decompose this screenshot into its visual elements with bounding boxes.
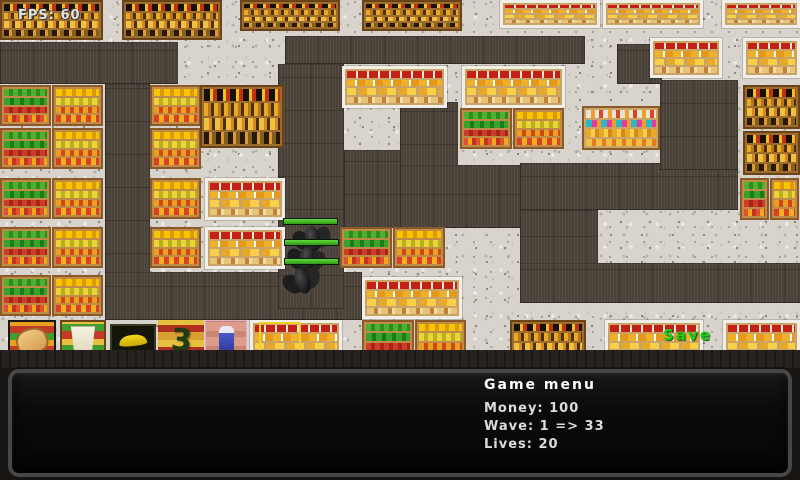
shelf-row bbox=[204, 132, 280, 144]
shelf-row bbox=[56, 89, 99, 96]
shelf-row bbox=[154, 132, 197, 139]
shelf-row bbox=[586, 120, 656, 128]
shelf-row bbox=[4, 240, 47, 247]
shelf-row bbox=[467, 71, 560, 78]
shelf-produceGR[interactable] bbox=[0, 227, 51, 268]
fps-counter: FPS: 60 bbox=[18, 8, 81, 23]
shelf-row bbox=[344, 249, 388, 256]
shelf-row bbox=[744, 191, 765, 198]
shelf-row bbox=[4, 200, 47, 207]
shelf-row bbox=[4, 191, 47, 198]
shelf-produceGR[interactable] bbox=[340, 227, 392, 268]
shelf-row bbox=[367, 291, 457, 298]
shelf-row bbox=[747, 135, 796, 143]
shelf-row bbox=[747, 164, 796, 172]
shelf-bottles[interactable] bbox=[200, 85, 284, 148]
shelf-bottles[interactable] bbox=[743, 131, 800, 175]
shelf-produceGR[interactable] bbox=[0, 85, 51, 126]
shelf-row bbox=[727, 20, 795, 23]
shelf-row bbox=[774, 200, 795, 207]
shelf-row bbox=[56, 158, 99, 165]
shelf-row bbox=[56, 257, 99, 264]
shelf-row bbox=[126, 13, 218, 20]
shelf-produceY[interactable] bbox=[150, 227, 201, 268]
shelf-row bbox=[747, 145, 796, 153]
shelf-cereal[interactable] bbox=[582, 106, 660, 150]
enemy-healthbar bbox=[283, 218, 338, 225]
shelf-row bbox=[608, 15, 698, 18]
shelf-row bbox=[154, 98, 197, 105]
shelf-row bbox=[748, 59, 795, 65]
shelf-row bbox=[56, 249, 99, 256]
shelf-row bbox=[154, 182, 197, 189]
shelf-row bbox=[204, 89, 280, 101]
shelf-row bbox=[4, 141, 47, 148]
shelf-row bbox=[467, 80, 560, 87]
shelf-row bbox=[366, 4, 458, 8]
shelf-row bbox=[4, 297, 47, 304]
shelf-row bbox=[514, 333, 582, 340]
shelf-row bbox=[4, 30, 99, 37]
game-screen: 3 FPS: 60 Save Game menu Money: 100 Wave… bbox=[0, 0, 800, 480]
shelf-produceGR[interactable] bbox=[0, 275, 51, 316]
shelf-produceY[interactable] bbox=[52, 227, 103, 268]
shelf-row bbox=[586, 139, 656, 147]
shelf-row bbox=[464, 138, 508, 145]
shelf-row bbox=[748, 43, 795, 49]
shelf-row bbox=[154, 150, 197, 157]
shelf-row bbox=[56, 191, 99, 198]
shelf-row bbox=[4, 150, 47, 157]
shelf-row bbox=[210, 192, 280, 199]
shelf-cheese[interactable] bbox=[205, 178, 285, 220]
shelf-produceY[interactable] bbox=[52, 178, 103, 219]
wave-value: Wave: 1 => 33 bbox=[484, 418, 605, 436]
shelf-row bbox=[366, 343, 410, 350]
shelf-row bbox=[154, 141, 197, 148]
shelf-row bbox=[4, 279, 47, 286]
shelf-row bbox=[747, 118, 796, 126]
shelf-row bbox=[517, 130, 560, 137]
shelf-row bbox=[586, 110, 656, 118]
shelf-produceY[interactable] bbox=[770, 178, 799, 220]
shelf-row bbox=[586, 129, 656, 137]
shelf-cheese[interactable] bbox=[500, 0, 600, 28]
shelf-row bbox=[747, 154, 796, 162]
shelf-row bbox=[419, 324, 462, 331]
shelf-row bbox=[56, 240, 99, 247]
shelf-cheese[interactable] bbox=[342, 66, 447, 108]
shelf-row bbox=[210, 258, 280, 265]
shelf-row bbox=[366, 333, 410, 340]
shelf-row bbox=[244, 10, 336, 14]
shelf-row bbox=[4, 305, 47, 312]
shelf-cheese[interactable] bbox=[362, 277, 462, 319]
shelf-row bbox=[608, 10, 698, 13]
shelf-row bbox=[747, 89, 796, 97]
shelf-row bbox=[397, 231, 441, 238]
shelf-row bbox=[366, 10, 458, 14]
shelf-row bbox=[154, 107, 197, 114]
shelf-produceY[interactable] bbox=[150, 85, 201, 126]
shelf-produceY[interactable] bbox=[393, 227, 445, 268]
shelf-row bbox=[744, 209, 765, 216]
shelf-row bbox=[56, 182, 99, 189]
shelf-row bbox=[210, 241, 280, 248]
shelf-row bbox=[56, 98, 99, 105]
shelf-row bbox=[154, 158, 197, 165]
shelf-row bbox=[56, 231, 99, 238]
shelf-row bbox=[4, 257, 47, 264]
shelf-row bbox=[244, 4, 336, 8]
shelf-row bbox=[347, 97, 442, 104]
shelf-row bbox=[154, 191, 197, 198]
shelf-row bbox=[514, 324, 582, 331]
shelf-produceY[interactable] bbox=[52, 275, 103, 316]
shelf-row bbox=[154, 257, 197, 264]
shelf-row bbox=[56, 115, 99, 122]
shelf-row bbox=[467, 88, 560, 95]
shelf-cheese[interactable] bbox=[603, 0, 703, 28]
path-tile bbox=[520, 163, 738, 210]
shelf-produceY[interactable] bbox=[52, 85, 103, 126]
shelf-bottles[interactable] bbox=[240, 0, 340, 31]
shelf-row bbox=[747, 99, 796, 107]
game-menu-text: Game menu Money: 100 Wave: 1 => 33 Lives… bbox=[484, 377, 605, 454]
shelf-cheese[interactable] bbox=[462, 66, 565, 108]
shelf-row bbox=[56, 208, 99, 215]
shelf-row bbox=[347, 88, 442, 95]
shelf-row bbox=[204, 118, 280, 130]
shelf-row bbox=[154, 249, 197, 256]
shelf-row bbox=[505, 15, 595, 18]
shelf-row bbox=[210, 232, 280, 239]
shelf-row bbox=[126, 30, 218, 37]
shelf-row bbox=[56, 279, 99, 286]
path-tile bbox=[0, 42, 178, 84]
menu-title: Game menu bbox=[484, 377, 605, 393]
game-menu-panel: Game menu Money: 100 Wave: 1 => 33 Lives… bbox=[8, 369, 792, 477]
shelf-produceY[interactable] bbox=[52, 128, 103, 169]
shelf-bottles[interactable] bbox=[743, 85, 800, 129]
shelf-row bbox=[727, 5, 795, 8]
shelf-row bbox=[517, 121, 560, 128]
shelf-row bbox=[367, 308, 457, 315]
shelf-row bbox=[397, 257, 441, 264]
shelf-bottles[interactable] bbox=[362, 0, 462, 31]
shelf-row bbox=[4, 89, 47, 96]
shelf-row bbox=[467, 97, 560, 104]
shelf-row bbox=[244, 23, 336, 27]
shelf-row bbox=[4, 107, 47, 114]
shelf-row bbox=[419, 343, 462, 350]
shelf-row bbox=[655, 43, 717, 49]
shelf-row bbox=[56, 200, 99, 207]
money-value: Money: 100 bbox=[484, 400, 605, 418]
shelf-produceY[interactable] bbox=[513, 108, 564, 149]
shelf-row bbox=[608, 20, 698, 23]
shelf-row bbox=[4, 231, 47, 238]
shelf-row bbox=[4, 132, 47, 139]
shelf-row bbox=[505, 20, 595, 23]
shelf-bottles[interactable] bbox=[122, 0, 222, 40]
shelf-row bbox=[419, 333, 462, 340]
shelf-row bbox=[126, 4, 218, 11]
shelf-row bbox=[210, 200, 280, 207]
shelf-row bbox=[517, 138, 560, 145]
shelf-row bbox=[56, 297, 99, 304]
shelf-row bbox=[608, 5, 698, 8]
shelf-row bbox=[154, 231, 197, 238]
shelf-row bbox=[4, 158, 47, 165]
game-board[interactable]: 3 bbox=[0, 0, 800, 368]
shelf-row bbox=[56, 141, 99, 148]
shelf-row bbox=[154, 89, 197, 96]
enemy-healthbar bbox=[284, 258, 339, 265]
shelf-cheese[interactable] bbox=[205, 227, 285, 269]
shelf-row bbox=[154, 200, 197, 207]
shelf-row bbox=[655, 67, 717, 73]
shelf-row bbox=[744, 182, 765, 189]
shelf-row bbox=[126, 21, 218, 28]
shelf-row bbox=[748, 67, 795, 73]
shelf-row bbox=[4, 182, 47, 189]
shelf-row bbox=[366, 17, 458, 21]
shelf-row bbox=[347, 71, 442, 78]
shelf-row bbox=[774, 182, 795, 189]
shelf-row bbox=[728, 334, 795, 341]
save-label[interactable]: Save bbox=[663, 326, 712, 344]
shelf-row bbox=[154, 240, 197, 247]
shelf-row bbox=[774, 191, 795, 198]
shelf-row bbox=[464, 112, 508, 119]
shelf-produceY[interactable] bbox=[150, 128, 201, 169]
shelf-row bbox=[4, 249, 47, 256]
shelf-row bbox=[347, 80, 442, 87]
shelf-row bbox=[366, 23, 458, 27]
shelf-row bbox=[4, 98, 47, 105]
shelf-row bbox=[210, 183, 280, 190]
shelf-row bbox=[728, 343, 795, 350]
shelf-row bbox=[210, 209, 280, 216]
shelf-row bbox=[344, 240, 388, 247]
shelf-row bbox=[464, 121, 508, 128]
shelf-row bbox=[505, 10, 595, 13]
shelf-row bbox=[56, 107, 99, 114]
shelf-row bbox=[366, 324, 410, 331]
shelf-produceGR[interactable] bbox=[460, 108, 512, 149]
shelf-row bbox=[774, 209, 795, 216]
shelf-row bbox=[747, 108, 796, 116]
shelf-row bbox=[748, 51, 795, 57]
banana-icon bbox=[119, 334, 148, 348]
path-tile bbox=[520, 263, 800, 303]
path-tile bbox=[285, 36, 585, 64]
shelf-row bbox=[56, 305, 99, 312]
path-tile bbox=[660, 80, 738, 170]
shelf-produceGR[interactable] bbox=[740, 178, 769, 220]
shelf-row bbox=[655, 51, 717, 57]
shelf-row bbox=[367, 299, 457, 306]
shelf-row bbox=[514, 343, 582, 350]
shelf-row bbox=[367, 282, 457, 289]
shelf-row bbox=[464, 130, 508, 137]
shelf-row bbox=[204, 103, 280, 115]
shelf-row bbox=[744, 200, 765, 207]
shelf-produceGR[interactable] bbox=[0, 178, 51, 219]
shelf-row bbox=[56, 132, 99, 139]
shelf-row bbox=[517, 112, 560, 119]
shelf-row bbox=[154, 208, 197, 215]
shelf-row bbox=[56, 150, 99, 157]
shelf-row bbox=[727, 10, 795, 13]
shelf-row bbox=[655, 59, 717, 65]
shelf-row bbox=[397, 240, 441, 247]
shelf-row bbox=[397, 249, 441, 256]
shelf-row bbox=[56, 288, 99, 295]
path-tile bbox=[400, 165, 525, 228]
shelf-row bbox=[344, 257, 388, 264]
enemy-healthbar bbox=[284, 239, 339, 246]
shelf-row bbox=[154, 115, 197, 122]
floor-shadow bbox=[0, 350, 800, 368]
shelf-row bbox=[244, 17, 336, 21]
lives-value: Lives: 20 bbox=[484, 436, 605, 454]
shelf-cheese[interactable] bbox=[743, 38, 800, 78]
shelf-cheese[interactable] bbox=[650, 38, 722, 78]
shelf-row bbox=[210, 249, 280, 256]
shelf-produceGR[interactable] bbox=[0, 128, 51, 169]
shelf-row bbox=[344, 231, 388, 238]
shelf-row bbox=[4, 115, 47, 122]
shelf-row bbox=[727, 15, 795, 18]
shelf-produceY[interactable] bbox=[150, 178, 201, 219]
shelf-row bbox=[505, 5, 595, 8]
shelf-row bbox=[4, 208, 47, 215]
shelf-row bbox=[728, 325, 795, 332]
shelf-cheese[interactable] bbox=[722, 0, 800, 28]
shelf-row bbox=[4, 288, 47, 295]
